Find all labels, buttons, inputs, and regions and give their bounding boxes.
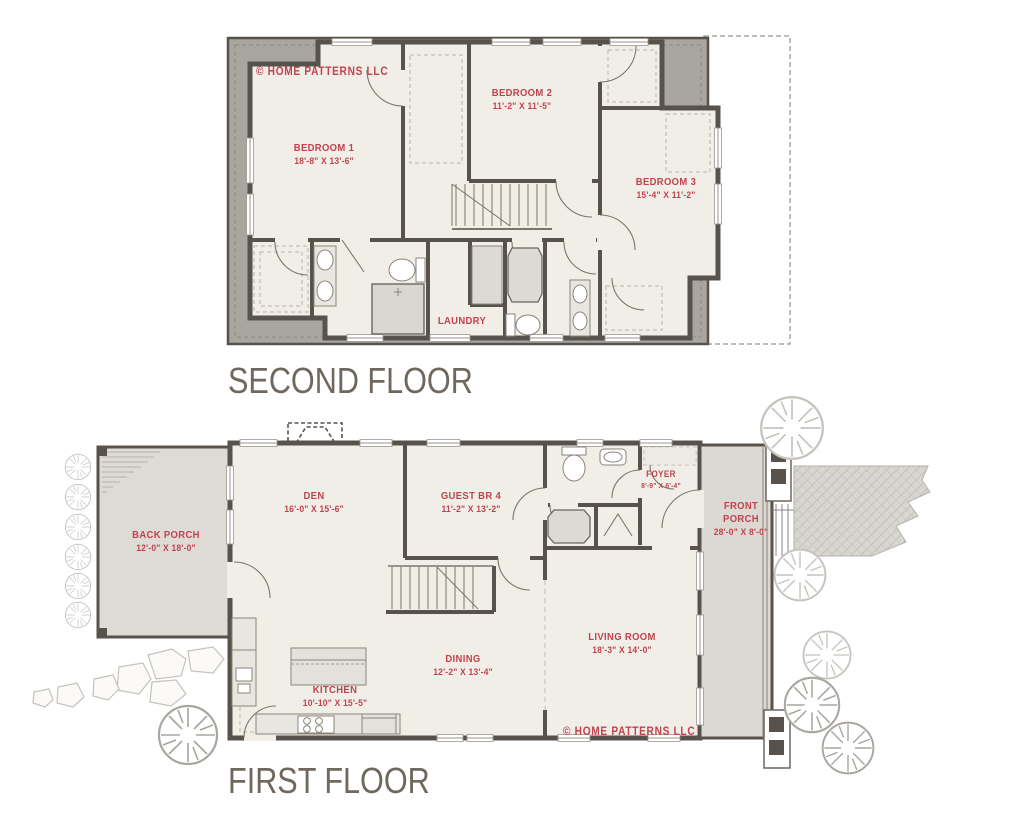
room-label-den: DEN 16'-0" X 15'-6" — [284, 490, 344, 516]
room-dims: 18'-3" X 14'-0" — [588, 644, 655, 657]
room-label-front-porch: FRONT PORCH 28'-0" X 8'-0" — [710, 500, 773, 539]
room-label-dining: DINING 12'-2" X 13'-4" — [433, 653, 493, 679]
room-dims: 12'-0" X 18'-0" — [132, 542, 200, 555]
stepping-stones — [33, 647, 224, 707]
chimney — [288, 423, 342, 443]
floor-plan-page: © HOME PATTERNS LLC BEDROOM 1 18'-8" X 1… — [0, 0, 1024, 819]
room-dims: 8'-9" X 6'-4" — [641, 480, 681, 491]
plan-drawing — [0, 0, 1024, 819]
room-label-laundry: LAUNDRY — [438, 315, 486, 328]
bushes — [65, 454, 90, 627]
copyright-first-floor: © HOME PATTERNS LLC — [563, 726, 695, 738]
room-dims: 10'-10" X 15'-5" — [303, 697, 367, 710]
room-dims: 12'-2" X 13'-4" — [433, 666, 493, 679]
room-name: BEDROOM 1 — [294, 142, 354, 155]
room-name: FRONT PORCH — [710, 500, 773, 526]
second-floor-plan — [228, 36, 790, 344]
room-name: GUEST BR 4 — [441, 490, 501, 503]
room-dims: 11'-2" X 11'-5" — [492, 100, 552, 113]
room-label-bedroom-2: BEDROOM 2 11'-2" X 11'-5" — [492, 87, 552, 113]
second-floor-title: SECOND FLOOR — [228, 360, 473, 402]
first-floor-title: FIRST FLOOR — [228, 760, 430, 802]
room-dims: 16'-0" X 15'-6" — [284, 503, 344, 516]
room-dims: 18'-8" X 13'-6" — [294, 155, 354, 168]
room-name: BEDROOM 2 — [492, 87, 552, 100]
room-name: BACK PORCH — [132, 529, 200, 542]
room-name: FOYER — [641, 469, 681, 480]
copyright-second-floor: © HOME PATTERNS LLC — [256, 66, 388, 78]
front-porch — [700, 445, 772, 738]
room-label-back-porch: BACK PORCH 12'-0" X 18'-0" — [132, 529, 200, 555]
room-label-bedroom-3: BEDROOM 3 15'-4" X 11'-2" — [636, 176, 696, 202]
room-dims: 11'-2" X 13'-2" — [441, 503, 501, 516]
room-label-living-room: LIVING ROOM 18'-3" X 14'-0" — [588, 631, 655, 657]
room-dims: 15'-4" X 11'-2" — [636, 189, 696, 202]
room-name: BEDROOM 3 — [636, 176, 696, 189]
first-floor-outline — [230, 443, 700, 738]
walkway — [794, 466, 930, 556]
room-label-guest-br-4: GUEST BR 4 11'-2" X 13'-2" — [441, 490, 501, 516]
room-dims: 28'-0" X 8'-0" — [710, 526, 773, 539]
room-name: DEN — [284, 490, 344, 503]
room-name: KITCHEN — [303, 684, 367, 697]
room-name: LAUNDRY — [438, 315, 486, 328]
room-label-bedroom-1: BEDROOM 1 18'-8" X 13'-6" — [294, 142, 354, 168]
room-label-foyer: FOYER 8'-9" X 6'-4" — [641, 469, 681, 491]
room-label-kitchen: KITCHEN 10'-10" X 15'-5" — [303, 684, 367, 710]
room-name: LIVING ROOM — [588, 631, 655, 644]
room-name: DINING — [433, 653, 493, 666]
